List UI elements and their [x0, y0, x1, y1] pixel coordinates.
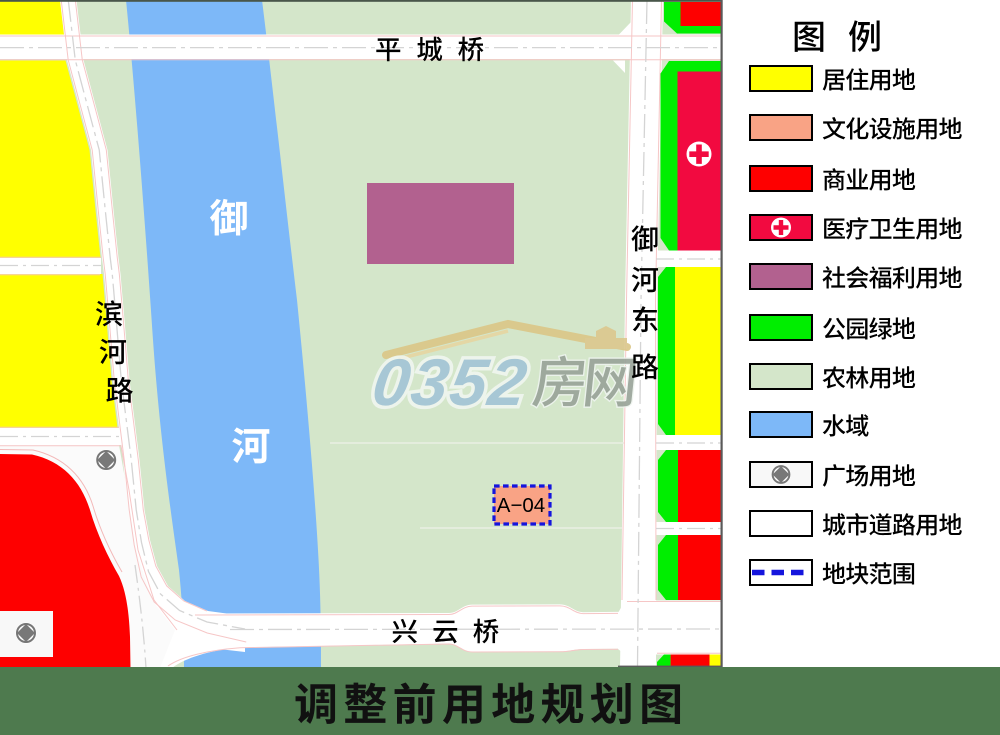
- svg-text:A−04: A−04: [497, 494, 545, 517]
- svg-text:0352: 0352: [368, 346, 533, 420]
